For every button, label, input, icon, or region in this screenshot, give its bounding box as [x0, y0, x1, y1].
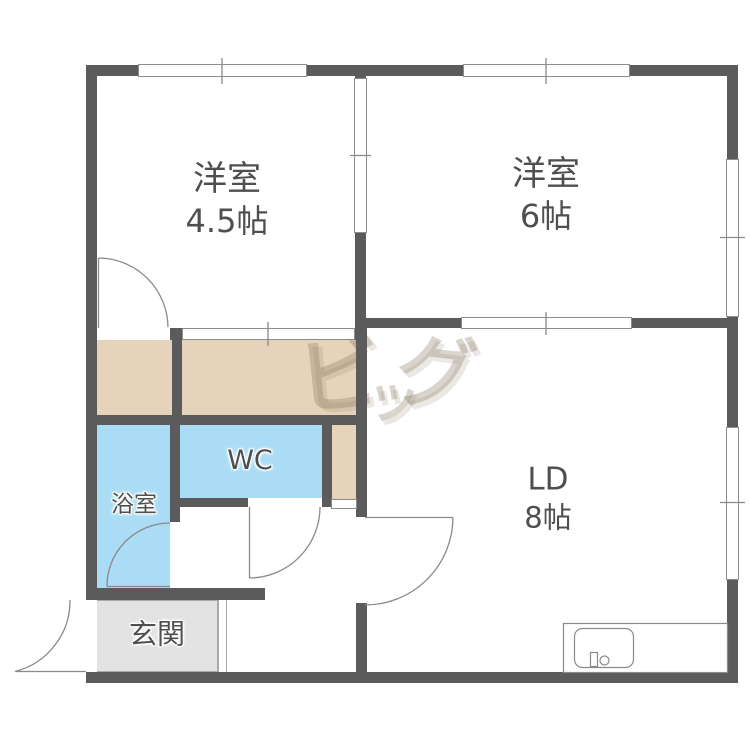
room-name: LD: [524, 461, 571, 500]
room-label-bedroom1: 洋室 4.5帖: [186, 158, 269, 241]
door-swing-bedroom1: [99, 258, 169, 327]
kitchen-counter: [564, 624, 728, 673]
door-swing-entrance: [15, 600, 70, 672]
room-label-toilet: WC: [227, 444, 273, 478]
room-size: 4.5帖: [186, 200, 269, 240]
door-swing-ld: [365, 518, 453, 606]
room-size: 8帖: [524, 499, 571, 535]
room-size: 6帖: [512, 195, 580, 235]
room-label-entrance: 玄関: [129, 617, 185, 652]
faucet-icon: [591, 653, 598, 667]
room-label-bathroom: 浴室: [111, 491, 157, 520]
room-name: 洋室: [512, 153, 580, 196]
room-name: 洋室: [186, 158, 269, 201]
floorplan: ビ ッ グ: [0, 0, 750, 750]
door-swing-toilet: [250, 507, 321, 578]
door-swing-bathroom: [107, 523, 170, 587]
room-label-bedroom2: 洋室 6帖: [512, 153, 580, 236]
room-label-ld: LD 8帖: [524, 461, 571, 536]
plan-strokes: [0, 0, 750, 750]
drain-icon: [600, 656, 609, 665]
